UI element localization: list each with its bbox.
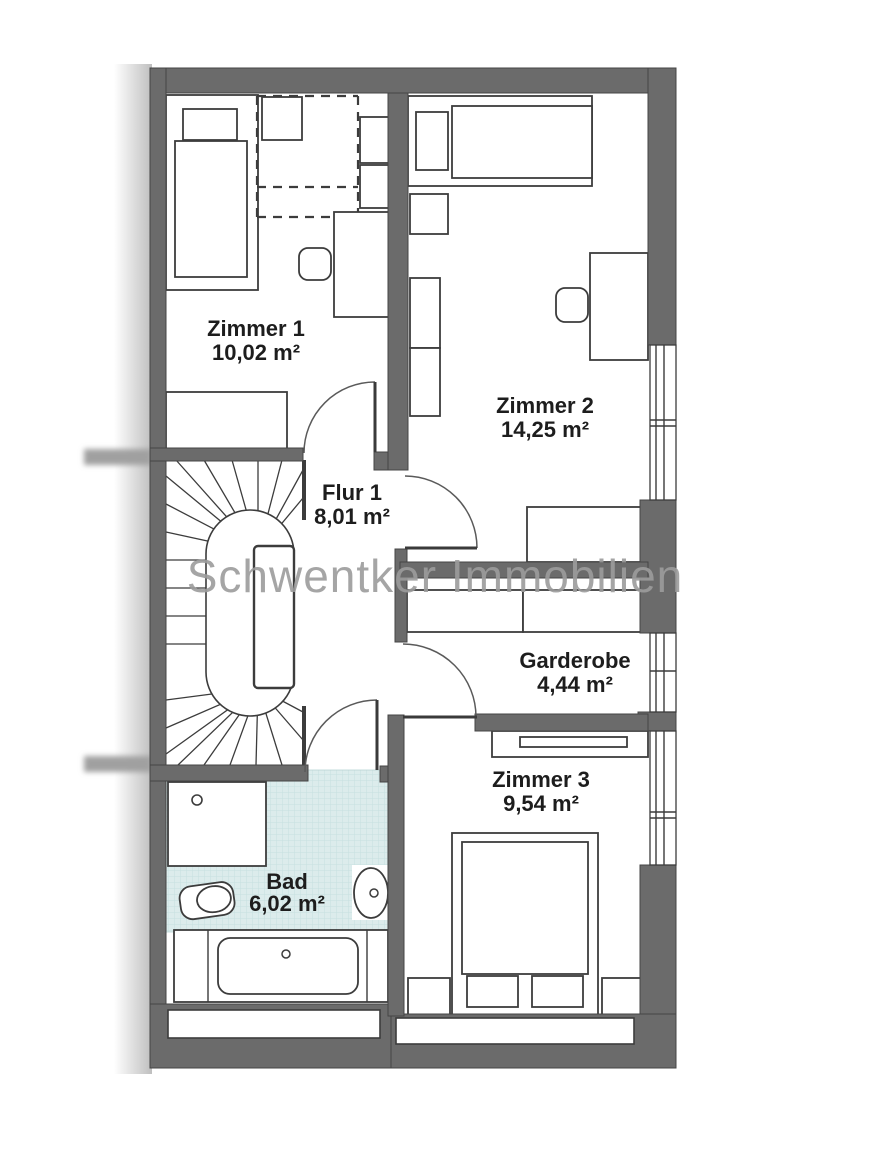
room-area-zimmer3: 9,54 m² xyxy=(503,791,579,816)
sink xyxy=(354,868,388,918)
room-area-bad: 6,02 m² xyxy=(249,891,325,916)
wall-exterior-right xyxy=(648,68,676,345)
neighbor-wall-stub xyxy=(84,449,152,465)
exterior-party-wall-shadow xyxy=(84,64,152,1074)
wall-zimmer1-zimmer2 xyxy=(388,93,408,470)
wall-bad-zimmer3 xyxy=(388,715,404,1016)
room-label-garderobe: Garderobe xyxy=(519,648,630,673)
room-label-zimmer3: Zimmer 3 xyxy=(492,767,590,792)
chair xyxy=(556,288,588,322)
window-zimmer3-side xyxy=(650,731,676,865)
wall-stair-bad xyxy=(150,765,308,781)
bed-mattress xyxy=(175,141,247,277)
wall-exterior-top xyxy=(150,68,676,93)
floorplan-drawing: Zimmer 1 10,02 m² Zimmer 2 14,25 m² Flur… xyxy=(0,0,870,1152)
room-area-zimmer1: 10,02 m² xyxy=(212,340,300,365)
wardrobe-rail xyxy=(520,737,627,747)
room-label-flur1: Flur 1 xyxy=(322,480,382,505)
window-garderobe xyxy=(650,633,676,712)
room-label-zimmer1: Zimmer 1 xyxy=(207,316,305,341)
window-zimmer3-bottom xyxy=(396,1018,634,1044)
toilet xyxy=(178,881,236,921)
bed-pillow xyxy=(416,112,448,170)
watermark-text: Schwentker Immobilien xyxy=(187,550,684,602)
chair xyxy=(299,248,331,280)
dresser xyxy=(166,392,287,452)
bed-pillow xyxy=(532,976,583,1007)
shelf xyxy=(360,117,389,163)
desk xyxy=(590,253,648,360)
cabinet xyxy=(262,97,302,140)
shelf xyxy=(410,348,440,416)
wall-exterior-left xyxy=(150,68,166,1068)
nightstand xyxy=(408,978,450,1016)
nightstand xyxy=(410,194,448,234)
bathtub xyxy=(174,930,388,1002)
stairwell-edge xyxy=(302,460,306,520)
window-bad-bottom xyxy=(168,1010,380,1038)
floorplan-screenshot: Zimmer 1 10,02 m² Zimmer 2 14,25 m² Flur… xyxy=(0,0,870,1152)
desk xyxy=(334,212,389,317)
room-area-zimmer2: 14,25 m² xyxy=(501,417,589,442)
shelf xyxy=(360,165,389,208)
bed-mattress xyxy=(452,106,592,178)
shelf xyxy=(410,278,440,348)
shower xyxy=(168,782,266,866)
room-area-flur1: 8,01 m² xyxy=(314,504,390,529)
bed-pillow xyxy=(183,109,237,140)
nightstand xyxy=(602,978,643,1016)
window-zimmer2 xyxy=(650,345,676,500)
room-label-zimmer2: Zimmer 2 xyxy=(496,393,594,418)
wall-garderobe-zimmer3 xyxy=(475,714,648,731)
room-area-garderobe: 4,44 m² xyxy=(537,672,613,697)
stairwell-edge xyxy=(302,706,306,765)
wall-bad-zimmer3 xyxy=(380,766,388,782)
wall-zimmer1-zimmer2 xyxy=(374,452,388,470)
wall-zimmer1-flur xyxy=(150,448,303,461)
neighbor-wall-stub xyxy=(84,756,152,772)
bed-pillow xyxy=(467,976,518,1007)
bed-mattress xyxy=(462,842,588,974)
